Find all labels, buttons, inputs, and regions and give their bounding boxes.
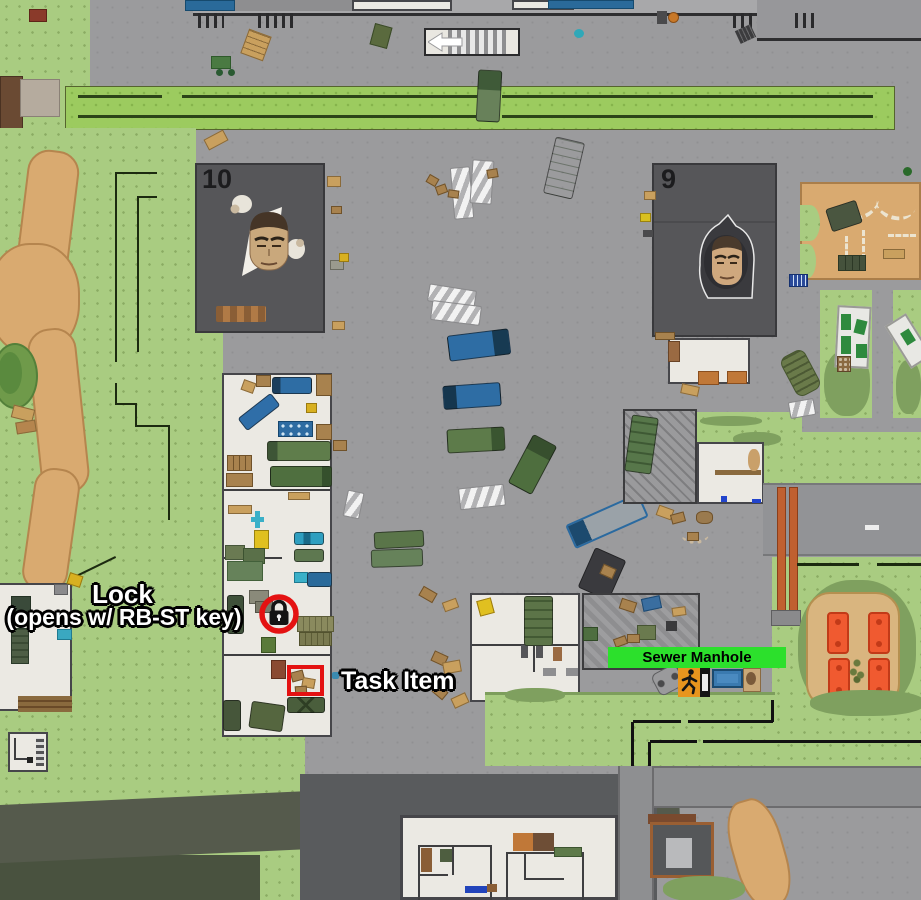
fence	[771, 700, 774, 722]
crate	[435, 183, 448, 195]
crate	[486, 168, 498, 179]
shelf-rack	[185, 0, 235, 11]
crate	[327, 176, 341, 187]
green-truck	[524, 596, 553, 646]
teal-barrel	[574, 29, 584, 38]
bush-row	[663, 876, 745, 900]
shelf-rack	[548, 0, 634, 9]
green-truck	[508, 434, 558, 495]
rooftop-room	[352, 0, 452, 11]
trader-face-9-icon	[686, 210, 766, 305]
military-boxes	[227, 561, 263, 581]
garden-bed-frame	[827, 612, 849, 654]
striped-barrier	[469, 159, 494, 204]
blue-truck	[442, 382, 502, 410]
pillar	[521, 645, 528, 658]
room-outline	[506, 852, 584, 900]
crate	[627, 634, 640, 643]
green-crate	[583, 627, 598, 641]
tan-structure	[20, 79, 60, 117]
green-shelf	[554, 847, 582, 857]
soldier-gear	[369, 23, 392, 49]
exit-icon-door	[702, 674, 708, 691]
blue-truck	[447, 328, 512, 361]
teal-table	[251, 511, 264, 528]
lock-icon	[273, 602, 285, 612]
machine	[11, 628, 29, 664]
hedge-line	[78, 115, 476, 118]
blue-mark	[752, 499, 761, 503]
solar-panel	[789, 274, 808, 287]
fence	[115, 172, 157, 174]
dead-plant	[848, 654, 866, 684]
interior-wall	[524, 878, 564, 880]
crate-stack	[316, 374, 332, 396]
crate	[644, 191, 656, 200]
crate	[680, 383, 700, 397]
crate	[332, 321, 345, 330]
road-dash	[865, 525, 879, 530]
loading-dock	[727, 371, 747, 384]
crate	[671, 606, 686, 617]
interior-wall	[418, 874, 448, 876]
garden-bed	[841, 336, 851, 354]
bush-row	[700, 416, 762, 426]
crate	[333, 440, 347, 451]
olive-truck	[248, 701, 285, 732]
runner-glyph	[679, 668, 700, 695]
task-item-box	[287, 665, 324, 696]
crate	[883, 249, 905, 259]
olive-truck	[371, 548, 424, 568]
fence	[115, 383, 117, 405]
pallet	[203, 130, 228, 151]
lock-label-line2: (opens w/ RB-ST key)	[0, 604, 253, 631]
stove	[27, 757, 33, 763]
bush-row	[810, 690, 921, 716]
fence	[650, 740, 697, 743]
red-container	[29, 9, 47, 22]
railing	[198, 13, 224, 28]
teal-crate	[294, 572, 308, 583]
military-crate-long	[299, 632, 332, 646]
fence	[137, 196, 139, 352]
green-truck	[270, 466, 332, 487]
olive-truck	[374, 530, 425, 550]
log-pile	[18, 696, 72, 712]
blue-mark	[721, 496, 727, 502]
green-truck	[267, 441, 331, 461]
exit-runner-icon	[678, 666, 710, 697]
top-right-building	[757, 0, 921, 41]
machine-row	[278, 421, 313, 437]
floor-mark	[543, 668, 556, 676]
military-crate-long	[297, 616, 334, 632]
gate-base	[771, 610, 801, 626]
furniture	[421, 848, 432, 872]
floor-mark	[566, 668, 578, 676]
hedge-line	[182, 95, 478, 98]
blue-truck	[307, 572, 332, 587]
gate-post	[789, 487, 798, 615]
crate	[670, 511, 686, 524]
military-boxes	[225, 545, 245, 560]
tan-box-contents	[746, 672, 756, 685]
green-truck	[476, 69, 503, 122]
building-9-number: 9	[661, 164, 676, 195]
garden-bed	[856, 344, 867, 358]
blue-barrel	[332, 672, 339, 679]
green-barrel	[228, 69, 235, 76]
rooftop-orange	[513, 833, 533, 851]
crate	[655, 332, 675, 340]
interior-wall	[533, 646, 535, 672]
interior-wall	[452, 845, 454, 875]
sewer-manhole-label: Sewer Manhole	[642, 649, 751, 666]
railing	[795, 13, 819, 28]
pillar	[536, 645, 543, 658]
fence	[168, 425, 170, 520]
fence	[135, 425, 170, 427]
blue-container-inner	[717, 674, 738, 683]
green-barrel	[216, 69, 223, 76]
interior-wall	[14, 758, 28, 760]
loading-dock	[698, 371, 719, 385]
grass-wedge	[800, 205, 820, 241]
crate-cluster	[226, 473, 253, 487]
blue-furniture	[465, 886, 487, 893]
interior-wall	[524, 852, 526, 880]
crate-stack	[256, 375, 271, 387]
green-truck	[446, 426, 505, 453]
striped-truck	[458, 484, 506, 511]
interior-wall	[14, 738, 16, 760]
road-light-v	[618, 766, 654, 900]
east-road	[763, 483, 921, 556]
olive-truck	[223, 700, 241, 731]
lawn-south	[485, 692, 775, 766]
fence	[115, 403, 137, 405]
pallet	[228, 505, 252, 514]
furniture	[487, 884, 497, 892]
crate-cluster	[227, 455, 252, 471]
crate	[687, 532, 699, 541]
hedge-line	[78, 95, 162, 98]
military-crates	[838, 255, 866, 271]
green-truck	[543, 136, 585, 199]
garden-bed-frame	[868, 612, 890, 654]
fence	[137, 196, 157, 198]
lock-annotation	[256, 591, 302, 637]
gate-post	[777, 487, 786, 615]
lawn-bush	[505, 688, 565, 702]
pallet	[288, 492, 310, 500]
trader-face-10-icon	[220, 186, 310, 308]
pallet	[240, 29, 271, 62]
brown-shelf	[668, 341, 680, 362]
sandbag-wall	[778, 347, 822, 399]
gray-crate	[643, 230, 653, 237]
crate	[837, 356, 851, 372]
crate	[316, 424, 332, 440]
hedge-line	[502, 95, 873, 98]
shed-skylight	[666, 838, 692, 868]
sandbag-pile	[696, 511, 713, 524]
stairs	[36, 738, 44, 766]
red-crate	[271, 660, 286, 679]
crate	[442, 598, 460, 613]
blue-truck	[272, 377, 312, 394]
striped-barrier	[342, 490, 364, 520]
crate	[447, 189, 459, 198]
fence	[648, 742, 651, 766]
left-arrow-icon	[428, 32, 466, 52]
hedge-line	[502, 115, 873, 118]
forklift	[254, 530, 269, 549]
dark-crate	[666, 621, 677, 631]
green-crates	[211, 56, 231, 69]
railing	[258, 13, 298, 28]
interior-wall	[224, 489, 330, 491]
fence	[631, 722, 634, 766]
tan-furniture	[748, 449, 760, 471]
yellow-crate	[306, 403, 317, 413]
green-crate	[261, 637, 276, 653]
yellow-crate	[640, 213, 651, 222]
task-item-label: Task Item	[341, 667, 454, 696]
orange-barrel	[668, 12, 679, 23]
garden-bed	[841, 314, 851, 330]
road-light-h	[650, 766, 921, 808]
trench-line	[888, 234, 916, 240]
pallet-strip	[216, 306, 266, 322]
furniture	[440, 849, 452, 862]
grass-wedge	[800, 244, 816, 278]
fence	[797, 563, 859, 566]
fence	[135, 403, 137, 427]
rooftop-brown	[533, 833, 554, 851]
garden-bush	[896, 360, 921, 414]
crate	[331, 206, 342, 214]
fence	[688, 720, 773, 723]
door-mark	[553, 647, 562, 661]
fence	[877, 563, 921, 566]
army-truck	[287, 697, 325, 713]
teal-car	[294, 532, 324, 545]
crate	[418, 586, 437, 604]
fence	[703, 740, 921, 743]
green-barrel	[903, 167, 912, 176]
interior-wall	[224, 654, 330, 656]
game-map: 10 9	[0, 0, 921, 900]
grass-dark-southwest	[0, 855, 260, 900]
sewer-manhole-badge: Sewer Manhole	[608, 647, 786, 668]
fence	[115, 172, 117, 362]
yellow-crate	[339, 253, 349, 262]
fence	[633, 720, 681, 723]
olive-van	[294, 549, 324, 562]
hazard-barrier	[788, 398, 817, 419]
crate-stack	[657, 11, 667, 24]
